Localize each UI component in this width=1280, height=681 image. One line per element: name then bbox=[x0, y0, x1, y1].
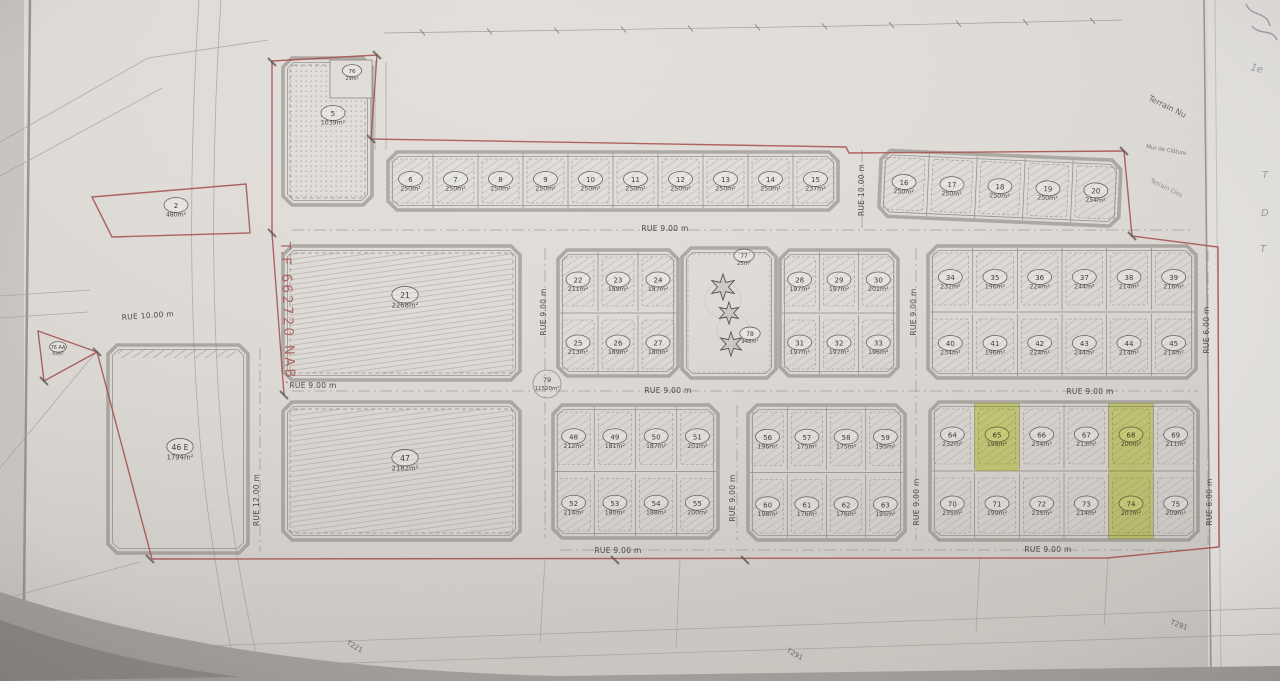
lot-21-parcel bbox=[290, 253, 513, 373]
lot-15-label: 15237m² bbox=[804, 172, 828, 193]
lot-9-label: 9250m² bbox=[534, 172, 558, 193]
lot-number: 48 bbox=[569, 433, 578, 441]
lot-number: 51 bbox=[693, 433, 702, 441]
lot-area: 176m² bbox=[797, 511, 818, 518]
lot-area: 2268m² bbox=[392, 301, 419, 309]
lot-number: 78 bbox=[746, 331, 754, 338]
lot-6-label: 6250m² bbox=[399, 172, 423, 193]
lot-37-label: 37244m² bbox=[1072, 270, 1096, 291]
lot-number: 28 bbox=[795, 277, 804, 285]
lot-43-label: 43244m² bbox=[1072, 336, 1096, 357]
lot-number: 14 bbox=[766, 176, 775, 184]
lot-62-label: 62176m² bbox=[834, 497, 858, 518]
lot-area: 235m² bbox=[942, 510, 963, 517]
lot-area: 189m² bbox=[608, 349, 629, 356]
lot-area: 200m² bbox=[687, 509, 708, 516]
lot-area: 214m² bbox=[1119, 350, 1140, 357]
lot-40-label: 40234m² bbox=[938, 336, 962, 357]
lot-number: 31 bbox=[795, 340, 804, 348]
lot-area: 196m² bbox=[985, 350, 1006, 357]
lot-20-label: 20254m² bbox=[1083, 182, 1108, 204]
lot-number: 56 bbox=[763, 434, 772, 442]
lot-number: 11 bbox=[631, 176, 640, 184]
handwriting-t2: T bbox=[1260, 244, 1267, 255]
lot-area: 250m² bbox=[490, 186, 511, 193]
lot-area: 201m² bbox=[687, 443, 708, 450]
plan-drawing: 6250m²7250m²8250m²9250m²10250m²11250m²12… bbox=[0, 0, 1280, 681]
lot-number: 77 bbox=[740, 253, 748, 260]
lot-number: 63 bbox=[881, 501, 890, 509]
lot-number: 12 bbox=[676, 176, 685, 184]
lot-27-label: 27180m² bbox=[646, 335, 670, 356]
lot-area: 250m² bbox=[400, 186, 421, 193]
lot-49-label: 49181m² bbox=[603, 429, 627, 450]
lot-number: 6 bbox=[408, 176, 413, 184]
lot-area: 189m² bbox=[608, 286, 629, 293]
lot-number: 79 bbox=[543, 376, 551, 384]
lot-number: 43 bbox=[1080, 340, 1089, 348]
lot-number: 60 bbox=[763, 501, 772, 509]
lot-area: 254m² bbox=[1085, 196, 1106, 204]
lot-area: 216m² bbox=[1164, 284, 1185, 291]
block-lots-6-15: 6250m²7250m²8250m²9250m²10250m²11250m²12… bbox=[388, 152, 838, 210]
lot-36-label: 36224m² bbox=[1028, 270, 1052, 291]
lot-18-label: 18250m² bbox=[987, 178, 1012, 200]
lot-45-label: 45214m² bbox=[1162, 336, 1186, 357]
lot-area: 232m² bbox=[940, 284, 961, 291]
lot-area: 224m² bbox=[1030, 284, 1051, 291]
lot-area: 188m² bbox=[646, 509, 667, 516]
lot-number: 25 bbox=[574, 340, 583, 348]
street-label-rue10-vert: RUE 10.00 m bbox=[857, 164, 866, 216]
lot-area: 1794m² bbox=[167, 453, 194, 461]
lot-22-label: 22211m² bbox=[566, 272, 590, 293]
lot-area: 214m² bbox=[1164, 350, 1185, 357]
lot-area: 25m² bbox=[737, 260, 751, 267]
lot-26-label: 26189m² bbox=[606, 335, 630, 356]
block-lots-56-63: 56196m²57175m²58175m²59195m²60198m²61176… bbox=[748, 405, 905, 540]
lot-56-label: 56196m² bbox=[756, 429, 780, 450]
lot-24-label: 24187m² bbox=[646, 272, 670, 293]
lot-area: 197m² bbox=[790, 286, 811, 293]
lot-52-label: 52214m² bbox=[562, 495, 586, 516]
handwriting-d: D bbox=[1261, 208, 1269, 219]
lot-73-label: 73214m² bbox=[1074, 496, 1098, 517]
lot-area: 199m² bbox=[987, 510, 1008, 517]
lot-number: 72 bbox=[1037, 501, 1046, 509]
lot-number: 20 bbox=[1091, 187, 1100, 195]
lot-number: 27 bbox=[654, 340, 663, 348]
lot-number: 50 bbox=[652, 433, 661, 441]
lot-69-label: 69211m² bbox=[1164, 427, 1188, 448]
lot-area: 250m² bbox=[941, 190, 962, 198]
lot-number: 36 bbox=[1035, 274, 1044, 282]
block-lots-22-27: 22211m²23189m²24187m²25213m²26189m²27180… bbox=[558, 250, 678, 376]
street-label-rue6-vert-1: RUE 6.00 m bbox=[1202, 306, 1211, 353]
lot-number: 62 bbox=[842, 501, 851, 509]
lot-number: 58 bbox=[842, 434, 851, 442]
lot-number: 53 bbox=[610, 500, 619, 508]
lot-29-label: 29197m² bbox=[827, 272, 851, 293]
street-label-rue9-mid-right: RUE 9.00 m bbox=[1066, 387, 1113, 396]
lot-area: 180m² bbox=[605, 509, 626, 516]
lot-area: 234m² bbox=[1032, 441, 1053, 448]
lot-16-label: 16250m² bbox=[891, 174, 916, 196]
block-lots-34-45: 34232m²35196m²36224m²37244m²38214m²39216… bbox=[928, 246, 1196, 378]
lot-number: 75 bbox=[1171, 501, 1180, 509]
lot-63-label: 63195m² bbox=[873, 497, 897, 518]
lot-78-label: 78948m² bbox=[740, 327, 760, 345]
lot-number: 64 bbox=[948, 432, 957, 440]
lot-55-label: 55200m² bbox=[685, 495, 709, 516]
lot-area: 250m² bbox=[1037, 194, 1058, 202]
lot-area: 235m² bbox=[1032, 510, 1053, 517]
lot-number: 32 bbox=[835, 340, 844, 348]
lot-2-label: 2480m² bbox=[164, 198, 188, 219]
lot-number: 5 bbox=[331, 110, 335, 118]
wall-hatch bbox=[118, 349, 236, 358]
lot-area: 250m² bbox=[580, 186, 601, 193]
lot-number: 35 bbox=[991, 274, 1000, 282]
lot-area: 213m² bbox=[1076, 441, 1097, 448]
lot-66-label: 66234m² bbox=[1030, 427, 1054, 448]
lot-51-label: 51201m² bbox=[685, 429, 709, 450]
lot-area: 29m² bbox=[345, 76, 358, 82]
lot-11-label: 11250m² bbox=[624, 172, 648, 193]
lot-5-label: 51039m² bbox=[321, 106, 346, 127]
street-label-rue9-bottom-right: RUE 9.00 m bbox=[1024, 545, 1071, 554]
lot-area: 244m² bbox=[1074, 284, 1095, 291]
lot-10-label: 10250m² bbox=[579, 172, 603, 193]
lot-area: 480m² bbox=[166, 212, 187, 219]
lot-area: 244m² bbox=[1074, 350, 1095, 357]
lot-number: 71 bbox=[993, 501, 1002, 509]
lot-48-label: 48212m² bbox=[562, 429, 586, 450]
lot-44-label: 44214m² bbox=[1117, 336, 1141, 357]
lot-31-label: 31197m² bbox=[788, 335, 812, 356]
lot-58-label: 58175m² bbox=[834, 429, 858, 450]
block-lots-64-75: 64232m²65198m²66234m²67213m²68200m²69211… bbox=[930, 402, 1198, 540]
lot-50-label: 50187m² bbox=[644, 429, 668, 450]
lot-number: 49 bbox=[610, 433, 619, 441]
street-label-rue9-top: RUE 9.00 m bbox=[641, 224, 688, 233]
lot-area: 250m² bbox=[535, 186, 556, 193]
lot-70-label: 70235m² bbox=[940, 496, 964, 517]
street-label-rue9-vert-1: RUE 9.00 m bbox=[539, 288, 548, 335]
lot-61-label: 61176m² bbox=[795, 497, 819, 518]
lot-32-label: 32197m² bbox=[827, 335, 851, 356]
street-label-rue12-vert: RUE 12.00 m bbox=[252, 474, 261, 526]
lot-19-label: 19250m² bbox=[1035, 180, 1060, 202]
lot-area: 214m² bbox=[1076, 510, 1097, 517]
lot-number: 54 bbox=[652, 500, 661, 508]
lot-59-label: 59195m² bbox=[873, 429, 897, 450]
lot-area: 214m² bbox=[1119, 284, 1140, 291]
lot-number: 44 bbox=[1125, 340, 1134, 348]
lot-area: 250m² bbox=[670, 186, 691, 193]
lot-area: 181m² bbox=[605, 443, 626, 450]
lot-area: 212m² bbox=[563, 443, 584, 450]
lot-area: 250m² bbox=[760, 186, 781, 193]
street-label-rue9-vert-4: RUE 9.00 m bbox=[912, 478, 921, 525]
handwriting-t1: T bbox=[1262, 170, 1269, 181]
lot-number: 16 bbox=[899, 179, 909, 187]
lot-area: 187m² bbox=[648, 286, 669, 293]
highlight-lots-68-74 bbox=[1109, 403, 1154, 539]
lot-34-label: 34232m² bbox=[938, 270, 962, 291]
lot-number: 17 bbox=[947, 181, 956, 189]
lot-number: 66 bbox=[1037, 432, 1046, 440]
lot-area: 948m² bbox=[741, 338, 758, 345]
lot-13-label: 13250m² bbox=[714, 172, 738, 193]
lot-number: 39 bbox=[1169, 274, 1178, 282]
lot-76-cell: 7629m² bbox=[330, 60, 372, 98]
lot-area: 195m² bbox=[875, 511, 896, 518]
lot-8-label: 8250m² bbox=[489, 172, 513, 193]
lot-area: 196m² bbox=[757, 443, 778, 450]
lot-12-label: 12250m² bbox=[669, 172, 693, 193]
lot-46E-label: 46 E1794m² bbox=[167, 438, 194, 461]
lot-number: 19 bbox=[1043, 185, 1052, 193]
lot-area: 237m² bbox=[805, 186, 826, 193]
lot-23-label: 23189m² bbox=[606, 272, 630, 293]
lot-number: 9 bbox=[543, 176, 547, 184]
street-label-rue9-vert-2: RUE 9.00 m bbox=[909, 288, 918, 335]
lot-number: 61 bbox=[802, 501, 811, 509]
lot-number: 37 bbox=[1080, 274, 1089, 282]
lot-number: 8 bbox=[498, 176, 502, 184]
lot-number: 59 bbox=[881, 434, 890, 442]
lot-57-label: 57175m² bbox=[795, 429, 819, 450]
block-lot-47: 472182m² bbox=[283, 402, 520, 540]
lot-30-label: 30201m² bbox=[866, 272, 890, 293]
lot-area: 232m² bbox=[942, 441, 963, 448]
lot-area: 214m² bbox=[563, 509, 584, 516]
highlight-lot-65 bbox=[975, 403, 1020, 471]
street-label-rue6-vert-2: RUE 6.00 m bbox=[1205, 478, 1214, 525]
roundabout-circle bbox=[533, 370, 561, 398]
lot-area: 175m² bbox=[797, 443, 818, 450]
lot-area: 176m² bbox=[836, 511, 857, 518]
lot-area: 187m² bbox=[646, 443, 667, 450]
lot-number: 76 AA bbox=[51, 345, 66, 351]
lot-42-label: 42224m² bbox=[1028, 336, 1052, 357]
lot-60-label: 60198m² bbox=[756, 497, 780, 518]
lot-53-label: 53180m² bbox=[603, 495, 627, 516]
lot-area: 196m² bbox=[985, 284, 1006, 291]
lot-number: 22 bbox=[574, 277, 583, 285]
lot-number: 34 bbox=[946, 274, 955, 282]
lot-75-label: 75209m² bbox=[1164, 496, 1188, 517]
lot-number: 76 bbox=[348, 69, 356, 75]
lot-area: 2182m² bbox=[392, 464, 419, 472]
lot-number: 40 bbox=[946, 340, 955, 348]
lot-number: 47 bbox=[400, 454, 410, 463]
lot-area: 209m² bbox=[1166, 510, 1187, 517]
lot-number: 52 bbox=[569, 500, 578, 508]
block-lots-48-55: 48212m²49181m²50187m²51201m²52214m²53180… bbox=[553, 405, 718, 538]
lot-area: 175m² bbox=[836, 443, 857, 450]
lot-number: 55 bbox=[693, 500, 702, 508]
lot-area: 250m² bbox=[989, 192, 1010, 200]
lot-area: 211m² bbox=[1166, 441, 1187, 448]
lot-7-label: 7250m² bbox=[444, 172, 468, 193]
lot-area: 197m² bbox=[790, 349, 811, 356]
block-lots-28-33: 28197m²29197m²30201m²31197m²32197m²33196… bbox=[780, 250, 898, 376]
lot-number: 57 bbox=[802, 434, 811, 442]
lot-25-label: 25213m² bbox=[566, 335, 590, 356]
lot-67-label: 67213m² bbox=[1074, 427, 1098, 448]
lot-area: 250m² bbox=[445, 186, 466, 193]
lot-number: 21 bbox=[400, 291, 410, 300]
lot-number: 69 bbox=[1171, 432, 1180, 440]
lot-14-label: 14250m² bbox=[759, 172, 783, 193]
lot-area: 211m² bbox=[568, 286, 589, 293]
lot-area: 43m² bbox=[52, 351, 64, 357]
lot-area: 197m² bbox=[829, 349, 850, 356]
lot-17-label: 17250m² bbox=[939, 176, 964, 198]
lot-54-label: 54188m² bbox=[644, 495, 668, 516]
lot-47-label: 472182m² bbox=[392, 449, 419, 472]
lot-number: 67 bbox=[1082, 432, 1091, 440]
lot-72-label: 72235m² bbox=[1030, 496, 1054, 517]
lot-number: 24 bbox=[654, 277, 663, 285]
lot-area: 250m² bbox=[715, 186, 736, 193]
lot-number: 41 bbox=[991, 340, 1000, 348]
cadastral-plan-photo: 6250m²7250m²8250m²9250m²10250m²11250m²12… bbox=[0, 0, 1280, 681]
lot-number: 18 bbox=[995, 183, 1004, 191]
lot-64-label: 64232m² bbox=[940, 427, 964, 448]
lot-number: 15 bbox=[811, 176, 820, 184]
street-label-rue9-mid-center: RUE 9.00 m bbox=[644, 386, 691, 395]
lot-39-label: 39216m² bbox=[1162, 270, 1186, 291]
lot-number: 7 bbox=[453, 176, 457, 184]
lot-38-label: 38214m² bbox=[1117, 270, 1141, 291]
lot-21-label: 212268m² bbox=[392, 286, 419, 309]
lot-area: 224m² bbox=[1030, 350, 1051, 357]
lot-area: 1039m² bbox=[321, 120, 346, 127]
street-label-rue9-bottom-left: RUE 9.00 m bbox=[594, 546, 641, 555]
lot-number: 29 bbox=[835, 277, 844, 285]
lot-area: 250m² bbox=[893, 188, 914, 196]
lot-41-label: 41196m² bbox=[983, 336, 1007, 357]
lot-35-label: 35196m² bbox=[983, 270, 1007, 291]
lot-number: 13 bbox=[721, 176, 730, 184]
block-lot-21: 212268m² bbox=[283, 246, 520, 380]
lot-area: 234m² bbox=[940, 350, 961, 357]
lot-area: 180m² bbox=[648, 349, 669, 356]
lot-number: 30 bbox=[874, 277, 883, 285]
lot-28-label: 28197m² bbox=[788, 272, 812, 293]
street-label-rue9-vert-3: RUE 9.00 m bbox=[728, 474, 737, 521]
lot-area: 195m² bbox=[875, 443, 896, 450]
lot-number: 38 bbox=[1125, 274, 1134, 282]
lot-number: 2 bbox=[174, 202, 178, 210]
lot-area: 196m² bbox=[868, 349, 889, 356]
lot-area: 213m² bbox=[568, 349, 589, 356]
lot-number: 42 bbox=[1035, 340, 1044, 348]
lot-number: 73 bbox=[1082, 501, 1091, 509]
lot-number: 23 bbox=[614, 277, 623, 285]
lot-number: 46 E bbox=[171, 443, 188, 452]
lot-71-label: 71199m² bbox=[985, 496, 1009, 517]
lot-number: 26 bbox=[614, 340, 623, 348]
lot-33-label: 33196m² bbox=[866, 335, 890, 356]
lot-number: 33 bbox=[874, 340, 883, 348]
lot-area: 197m² bbox=[829, 286, 850, 293]
lot-area: 201m² bbox=[868, 286, 889, 293]
roundabout-79: 7911520m² bbox=[533, 370, 561, 398]
lot-number: 10 bbox=[586, 176, 595, 184]
lot-area: 198m² bbox=[757, 511, 778, 518]
lot-area: 250m² bbox=[625, 186, 646, 193]
lot-number: 45 bbox=[1169, 340, 1178, 348]
lot-number: 70 bbox=[948, 501, 957, 509]
